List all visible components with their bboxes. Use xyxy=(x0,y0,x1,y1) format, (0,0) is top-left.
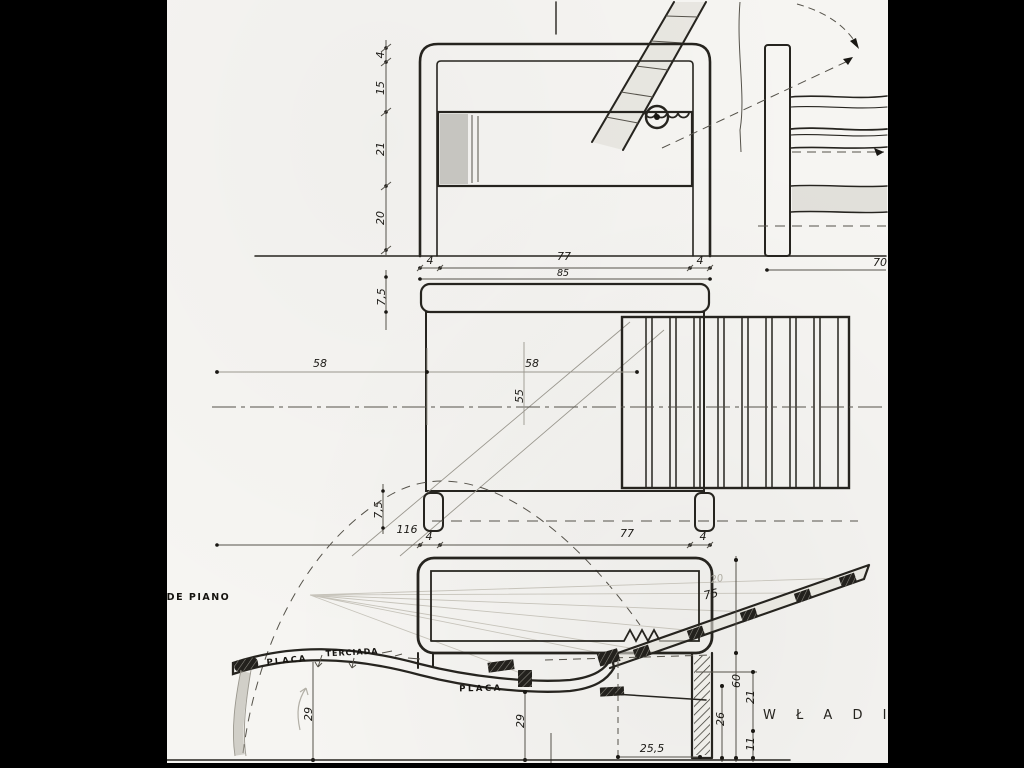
side-elevation-view: FICHAS DE PIANO PLACA TERCIADA PLACA 20 … xyxy=(167,481,888,763)
dim-front-leg-right: 4 xyxy=(697,254,704,267)
dim-plan-55: 55 xyxy=(513,389,526,403)
arrowhead xyxy=(874,148,884,156)
dim-height-11: 11 xyxy=(744,737,757,751)
dim-seat-height-front: 29 xyxy=(302,707,315,721)
label-placa-base: PLACA xyxy=(459,684,503,695)
label-placa-seat: PLACA xyxy=(266,654,308,668)
dim-plan-58-right: 58 xyxy=(525,357,539,370)
dim-front-gap: 15 xyxy=(374,81,387,95)
artist-signature: W Ł A D I M xyxy=(763,708,888,723)
front-elevation-view: 4 15 21 20 4 77 4 85 xyxy=(255,2,886,281)
side-post xyxy=(765,45,790,256)
dim-plan-foot: 7,5 xyxy=(372,501,385,519)
label-fichas-de-piano: FICHAS DE PIANO xyxy=(167,592,230,603)
plan-slatted-panel xyxy=(622,317,849,488)
dim-height-26: 26 xyxy=(714,712,727,726)
dim-foot-offset: 25,5 xyxy=(640,742,665,755)
plan-view: 58 58 55 7,5 7,5 116 4 77 4 xyxy=(212,270,886,556)
side-frame-inner xyxy=(431,571,699,641)
dim-front-total: 85 xyxy=(557,268,569,279)
arrowhead xyxy=(850,38,859,49)
dim-side-depth: 70 xyxy=(873,256,887,269)
plan-backrest-bar xyxy=(421,284,709,312)
dim-front-board: 21 xyxy=(374,142,387,156)
dim-front-rail: 4 xyxy=(374,52,387,59)
dim-plan-58-left: 58 xyxy=(313,357,327,370)
arrowhead xyxy=(843,57,853,65)
cushion-shading xyxy=(792,187,887,211)
back-board xyxy=(438,112,692,186)
seat-tip-hinge xyxy=(233,657,259,672)
side-view-top: 70 xyxy=(662,2,887,272)
back-strap-shading xyxy=(592,2,706,150)
dim-plan-span: 77 xyxy=(620,527,634,540)
dim-back-length: 75 xyxy=(702,586,719,603)
dim-plan-cushion: 7,5 xyxy=(375,288,388,306)
technical-drawing: 4 15 21 20 4 77 4 85 7 xyxy=(167,0,888,763)
foot-right xyxy=(695,493,714,531)
dim-front-lower: 20 xyxy=(374,211,387,225)
board-shading xyxy=(440,114,468,184)
dim-front-leg-left: 4 xyxy=(427,254,434,267)
dim-height-60: 60 xyxy=(730,674,743,688)
dim-plan-leg-left: 4 xyxy=(426,530,433,543)
dim-front-span: 77 xyxy=(557,250,571,263)
cord-line xyxy=(739,2,742,152)
plan-seat-frame xyxy=(426,312,704,491)
dim-height-21: 21 xyxy=(744,690,757,704)
dim-plan-leg-right: 4 xyxy=(700,530,707,543)
foot-left xyxy=(424,493,443,531)
dim-back-pencil: 20 xyxy=(710,573,724,586)
dim-seat-height-mid: 29 xyxy=(514,714,527,728)
label-terciada: TERCIADA xyxy=(325,647,378,659)
dim-plan-total: 116 xyxy=(397,523,418,536)
mid-hinge xyxy=(487,659,514,673)
drawing-paper: 4 15 21 20 4 77 4 85 7 xyxy=(167,0,888,763)
rear-leg-hatch xyxy=(694,656,710,755)
seat-support-hinge xyxy=(518,670,532,687)
